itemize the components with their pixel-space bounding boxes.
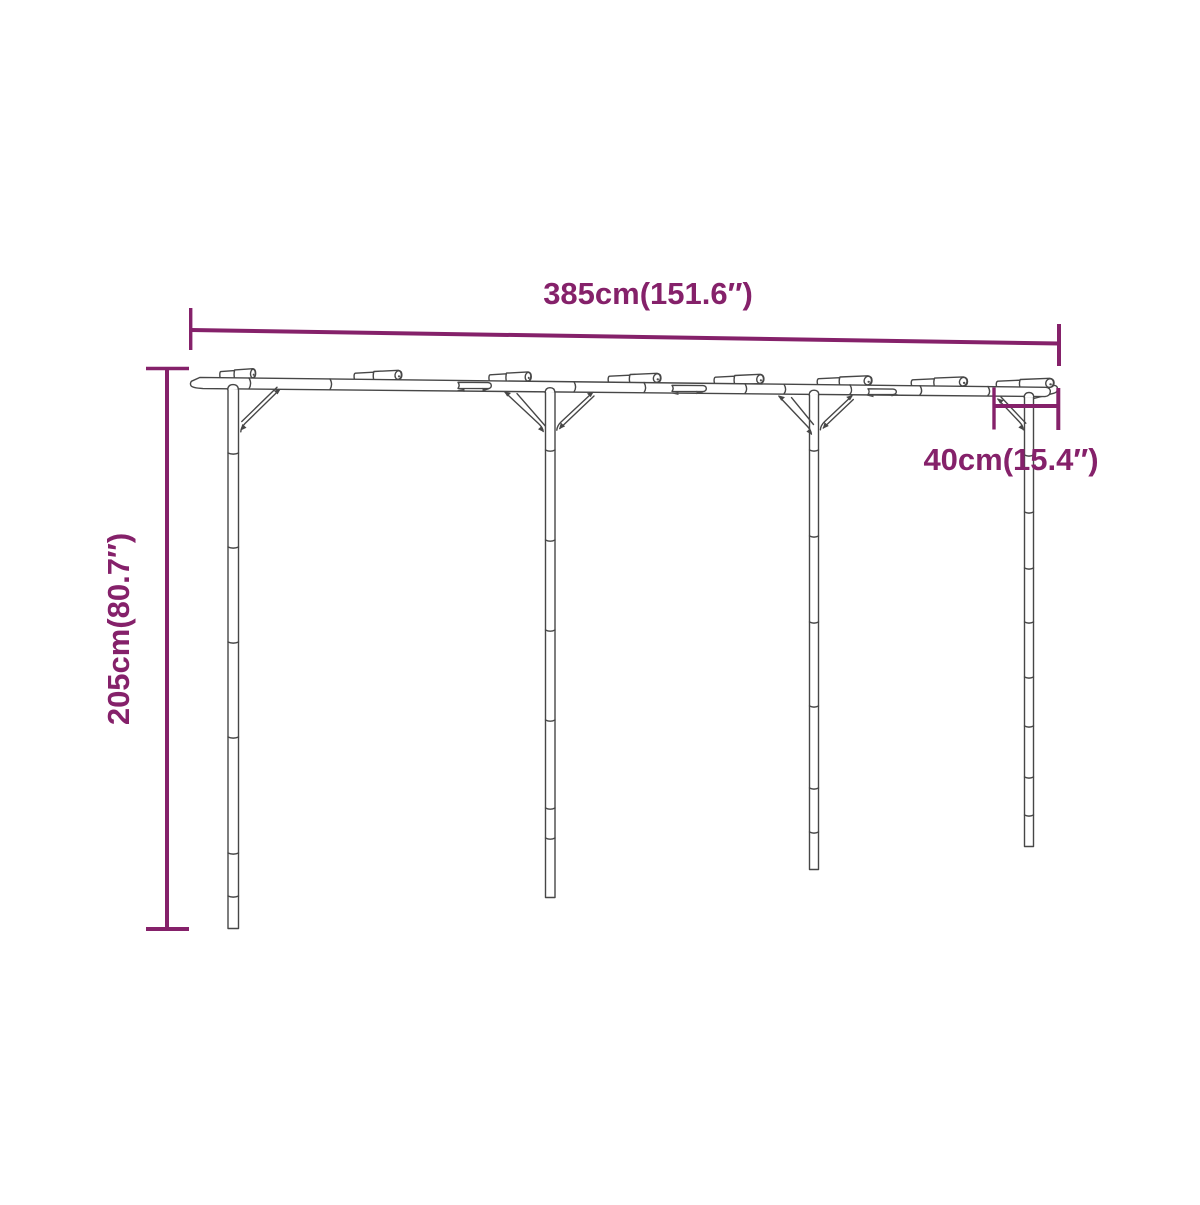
- svg-text:385cm(151.6″): 385cm(151.6″): [543, 276, 753, 311]
- svg-text:205cm(80.7″): 205cm(80.7″): [101, 533, 136, 725]
- svg-text:40cm(15.4″): 40cm(15.4″): [923, 442, 1098, 477]
